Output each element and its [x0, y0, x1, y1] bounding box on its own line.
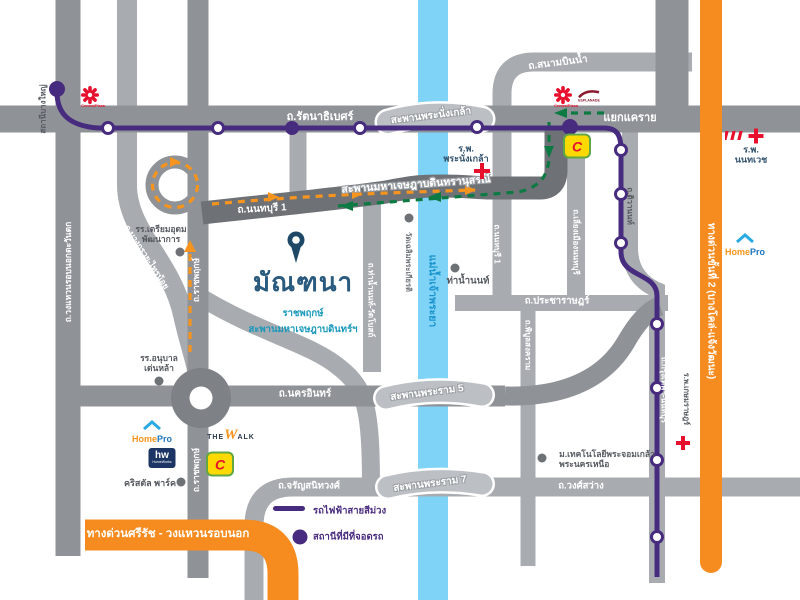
homepro-roof-icon: [723, 233, 767, 243]
road-label-phibun: ถ.พิบูลสงคราม: [522, 320, 535, 371]
road-label-rattanathibet: ถ.รัตนาธิเบศร์: [287, 107, 354, 125]
road-label-nonthaburi1-east: ถ.นนทบุรี 1: [491, 224, 504, 263]
tha-nam-non-dot: [451, 264, 460, 273]
legend-parking-station-label: สถานีที่มีที่จอดรถ: [313, 530, 383, 545]
homepro-roof-icon: [130, 420, 174, 430]
hospital-nonthavej-label: ร.พ.นนทเวช: [735, 145, 767, 166]
central-rattanathibet-logo: CentralPlaza: [554, 86, 578, 108]
road-label-pracharat: ถ.ประชาราษฎร์: [525, 294, 590, 309]
station-label-bang-yai: สถานีบางใหญ่: [37, 84, 50, 133]
road-label-nonthaburi1-west: ถ.นนทบุรี 1: [237, 200, 287, 218]
central-starburst-icon: [81, 86, 99, 104]
legend-purple-line-label: รถไฟฟ้าสายสีม่วง: [313, 504, 386, 519]
school-triam-dot: [176, 248, 185, 257]
road-label-ratchaphruek-south: ถ.ราชพฤกษ์: [189, 448, 203, 492]
hospital-kasemrad-cross-icon: [676, 436, 690, 450]
nonthavej-logo: [725, 129, 743, 141]
road-label-ratchaphruek-north: ถ.ราชพฤกษ์: [189, 258, 203, 302]
school-triam-label: รร.เตรียมอุดมพัฒนาการ: [135, 225, 186, 245]
river-label: แม่น้ำเจ้าพระยา: [425, 255, 442, 328]
crystal-park-label: คริสตัล พาร์ค: [124, 476, 176, 490]
expressway-label-si-rat: ทางด่วนศรีรัช - วงแหวนรอบนอก: [87, 525, 250, 543]
map-canvas: [0, 0, 800, 600]
location-pin-icon: [286, 230, 306, 266]
project-name: มัณฑนา: [230, 262, 376, 303]
hospital-phra-nangklao-cross-icon: [474, 163, 490, 179]
hospital-phra-nangklao-label: ร.พ.พระนั่งเกล้า: [443, 144, 488, 165]
the-walk-logo: THEWALK: [207, 427, 255, 443]
project-subtitle-2: สะพานมหาเจษฎาบดินทร์ฯ: [230, 322, 376, 337]
crystal-park-dot: [177, 478, 186, 487]
big-c-logo-ratchaphruek: C: [206, 452, 234, 477]
big-c-logo-khae-rai: C: [563, 134, 591, 159]
central-westgate-logo: CentralPlaza: [81, 86, 105, 108]
homepro-logo-west: HomePro: [130, 420, 174, 446]
central-starburst-icon: [554, 86, 572, 104]
road-label-outer-ring: ถ.วงแหวนรอบนอกตะวันตก: [61, 222, 75, 323]
homeworks-logo: hw HomeWorks: [149, 448, 176, 468]
university-label: ม.เทคโนโลยีพระจอมเกล้าพระนครเหนือ: [559, 450, 655, 470]
esplanade-logo: ESPLANADE: [578, 89, 600, 103]
road-label-wong-sawang: ถ.วงศ์สว่าง: [558, 479, 604, 494]
hospital-kasemrad-label: ร.พ.เกษมราษฎร์: [680, 373, 692, 425]
road-label-liang-mueang: ถ.เลี่ยงเมืองนนทบุรี: [570, 209, 583, 275]
road-label-khae-rai: แยกแคราย: [603, 108, 656, 126]
tha-nam-non-label: ท่าน้ำนนท์: [447, 274, 490, 289]
road-label-tiwanon: ถ.ติวานนท์: [624, 187, 637, 224]
minor-roads: [127, 0, 800, 600]
legend-station-swatch: [293, 530, 308, 545]
wat-chaloem-dot: [405, 214, 414, 223]
wat-chaloem-label: วัดเฉลิมพระเกียรติ: [402, 232, 414, 292]
road-label-nakhon-in: ถ.นครอินทร์: [279, 387, 332, 402]
school-denla-dot: [155, 377, 164, 386]
expressway-label-stage2: ทางด่วนขั้นที่ 2 (บางโคล่-แจ้งวัฒนะ): [704, 223, 719, 379]
legend-line-swatch: [273, 506, 305, 511]
project-subtitle-1: ราชพฤกษ์: [230, 306, 376, 321]
homepro-logo-east: HomePro: [723, 233, 767, 259]
school-denla-label: รร.อนุบาลเด่นหล้า: [140, 354, 178, 374]
route-map: ถ.รัตนาธิเบศร์ แยกแคราย ถ.สนามบินน้ำ ถ.ว…: [0, 0, 800, 600]
roundabout: [171, 368, 231, 428]
road-label-charan: ถ.จรัญสนิทวงศ์: [278, 479, 340, 494]
university-dot: [538, 454, 547, 463]
hospital-nonthavej-cross-icon: [749, 129, 764, 144]
project-title-block: มัณฑนา ราชพฤกษ์ สะพานมหาเจษฎาบดินทร์ฯ: [230, 230, 376, 337]
road-label-krungthep-nonthaburi: ถ.กรุงเทพฯ-นนทบุรี: [658, 357, 671, 423]
